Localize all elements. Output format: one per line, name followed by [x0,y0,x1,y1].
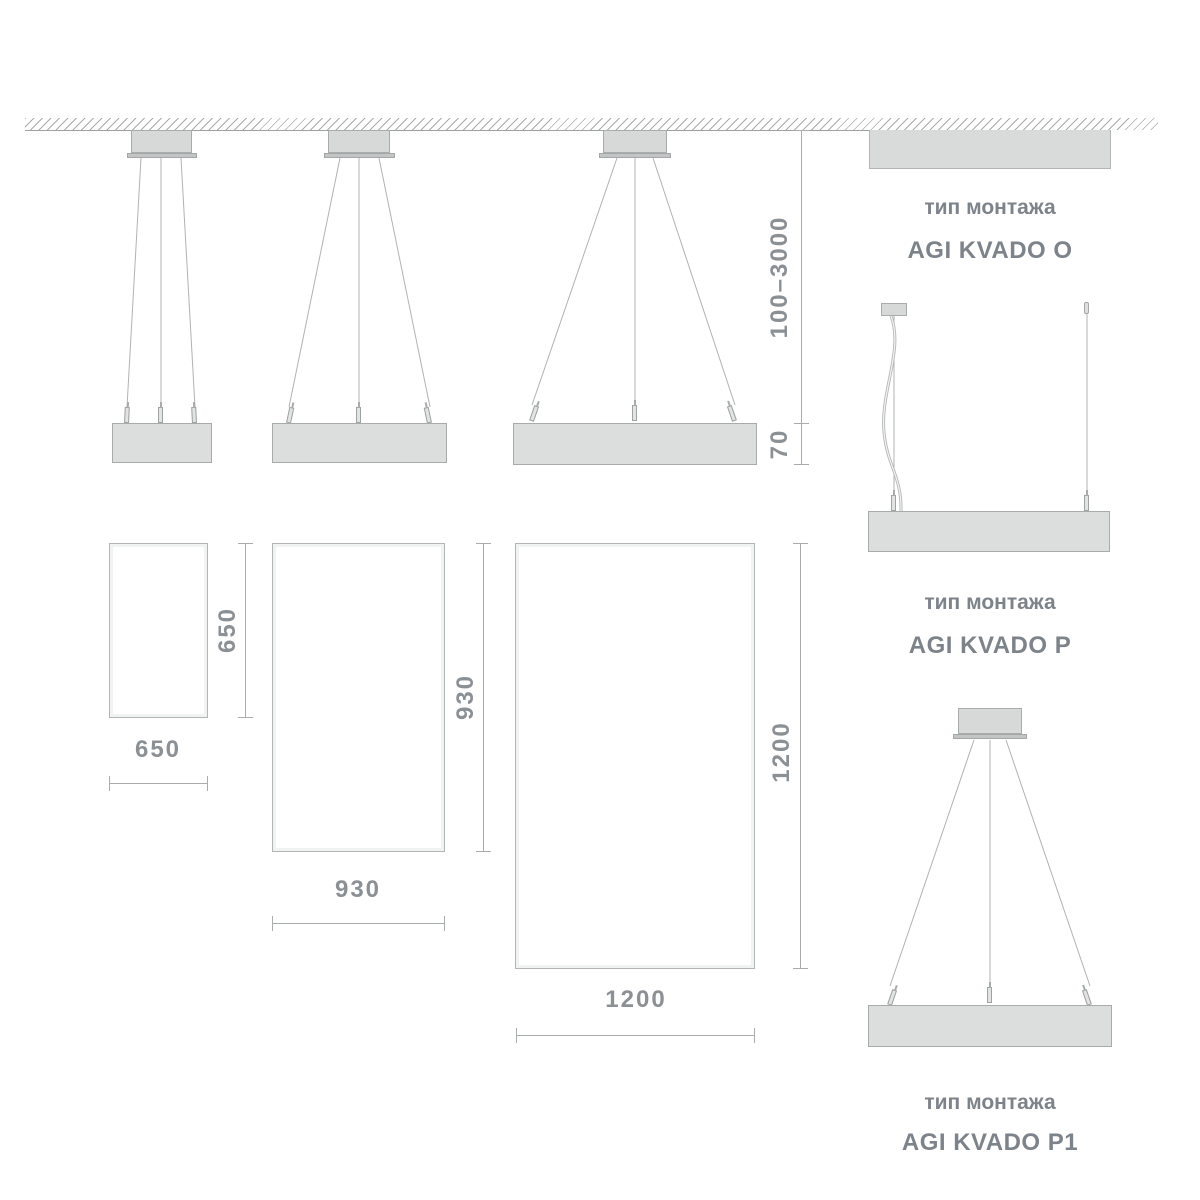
dim-text: 650 [135,736,181,764]
canopy [603,130,667,153]
dim-line [272,923,445,924]
mount-o-caption: тип монтажа [840,196,1140,220]
suspension-cable [532,158,617,405]
model-text: AGI KVADO P1 [902,1129,1078,1156]
canopy-flange [599,153,671,158]
dim-tick [754,1028,755,1043]
mount-p-model: AGI KVADO P [840,632,1140,660]
canopy [131,130,192,153]
cable-gripper [632,405,637,421]
mount-p-caption: тип монтажа [840,591,1140,615]
panel-1200-outline [515,543,755,969]
pendant-fixture-medium [272,423,447,463]
dim-text: 930 [335,876,381,904]
dim-tick [109,776,110,791]
dim-tick [238,543,253,544]
mount-o-fixture [869,130,1111,169]
dim-tick [476,851,491,852]
mount-o-model: AGI KVADO O [840,237,1140,265]
dim-tick [794,130,809,131]
pendant-fixture-large [513,423,757,465]
cable-gripper [158,407,163,423]
mount-p1-canopy [958,708,1022,734]
cable-gripper [1084,495,1089,511]
dim-text: 100–3000 [766,216,794,339]
dim-line [245,543,246,718]
suspension-cable [379,158,430,407]
suspension-cable [181,158,195,407]
dim-text: 1200 [768,721,796,782]
dim-tick [793,543,808,544]
caption-text: тип монтажа [924,196,1055,219]
dim-tick [272,916,273,931]
dim-tick [794,464,809,465]
mount-p1-model: AGI KVADO P1 [840,1129,1140,1157]
mount-p1-fixture [868,1005,1112,1047]
cable-gripper [191,407,197,423]
model-text: AGI KVADO P [909,632,1071,659]
dim-tick [238,717,253,718]
dim-text: 1200 [605,986,666,1014]
dim-tick [516,1028,517,1043]
canopy-flange [127,153,197,158]
dim-tick [793,968,808,969]
cable-gripper [124,407,130,423]
panel-650-outline [109,543,208,718]
mount-p1-caption: тип монтажа [840,1091,1140,1115]
dim-tick [444,916,445,931]
suspension-cable [289,158,340,407]
dim-tick [207,776,208,791]
suspension-cable [890,740,974,986]
cable-gripper [356,407,361,423]
dim-line [800,543,801,969]
ceiling-pin [1084,302,1089,314]
dim-line [109,783,208,784]
suspension-cable [1006,740,1090,986]
canopy-flange [324,153,395,158]
mount-p-canopy [881,303,907,316]
dim-tick [476,543,491,544]
ceiling-hatch [25,118,1158,130]
canopy [328,130,390,153]
dim-tick [794,423,809,424]
model-text: AGI KVADO O [907,237,1072,264]
caption-text: тип монтажа [924,591,1055,614]
mount-p-fixture [868,511,1110,552]
suspension-cable [127,158,141,407]
panel-930-outline [272,543,445,852]
dim-text: 930 [452,674,480,720]
dim-line-suspension [801,130,802,465]
power-cord [884,316,902,512]
pendant-fixture-small [112,423,212,463]
dim-line [516,1035,755,1036]
cable-gripper [891,495,896,511]
cable-gripper [987,987,992,1003]
dim-line [483,543,484,852]
caption-text: тип монтажа [924,1091,1055,1114]
dim-text: 70 [766,429,794,460]
dim-text: 650 [214,607,242,653]
canopy-flange [953,734,1027,739]
technical-drawing-canvas: 100–3000 70 650 650 930 930 1200 1200 [0,0,1200,1200]
suspension-cable [653,158,735,405]
